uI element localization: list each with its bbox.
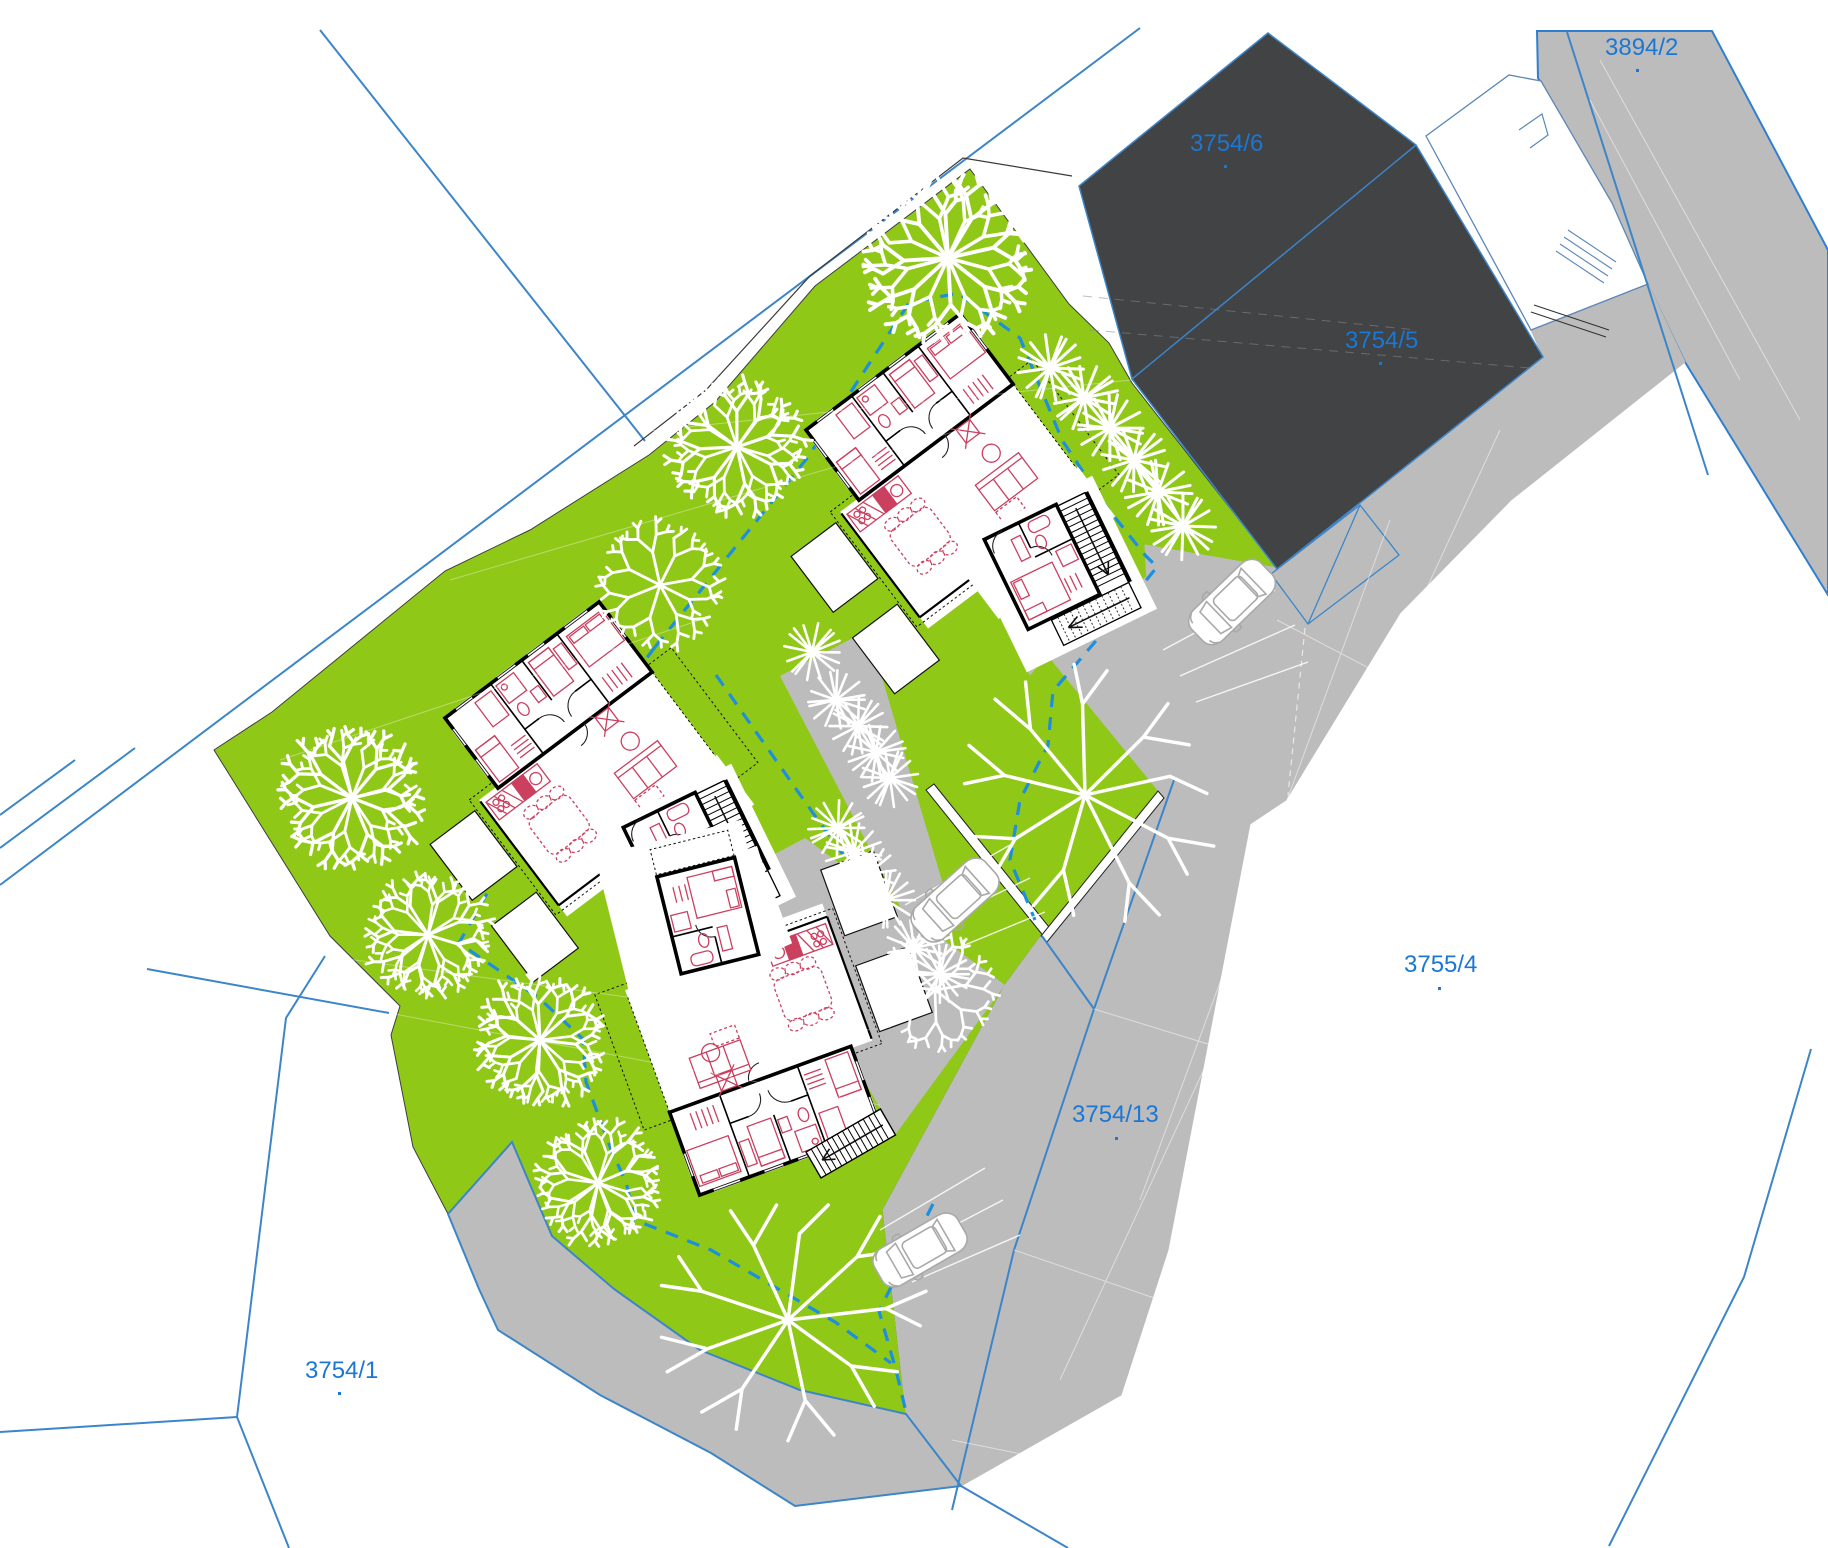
svg-text:3754/5: 3754/5 bbox=[1345, 327, 1418, 354]
svg-text:3754/6: 3754/6 bbox=[1190, 130, 1263, 157]
svg-text:3755/4: 3755/4 bbox=[1404, 951, 1477, 978]
svg-text:3754/13: 3754/13 bbox=[1072, 1101, 1159, 1128]
svg-text:3754/1: 3754/1 bbox=[305, 1357, 378, 1384]
svg-text:3894/2: 3894/2 bbox=[1605, 34, 1678, 61]
